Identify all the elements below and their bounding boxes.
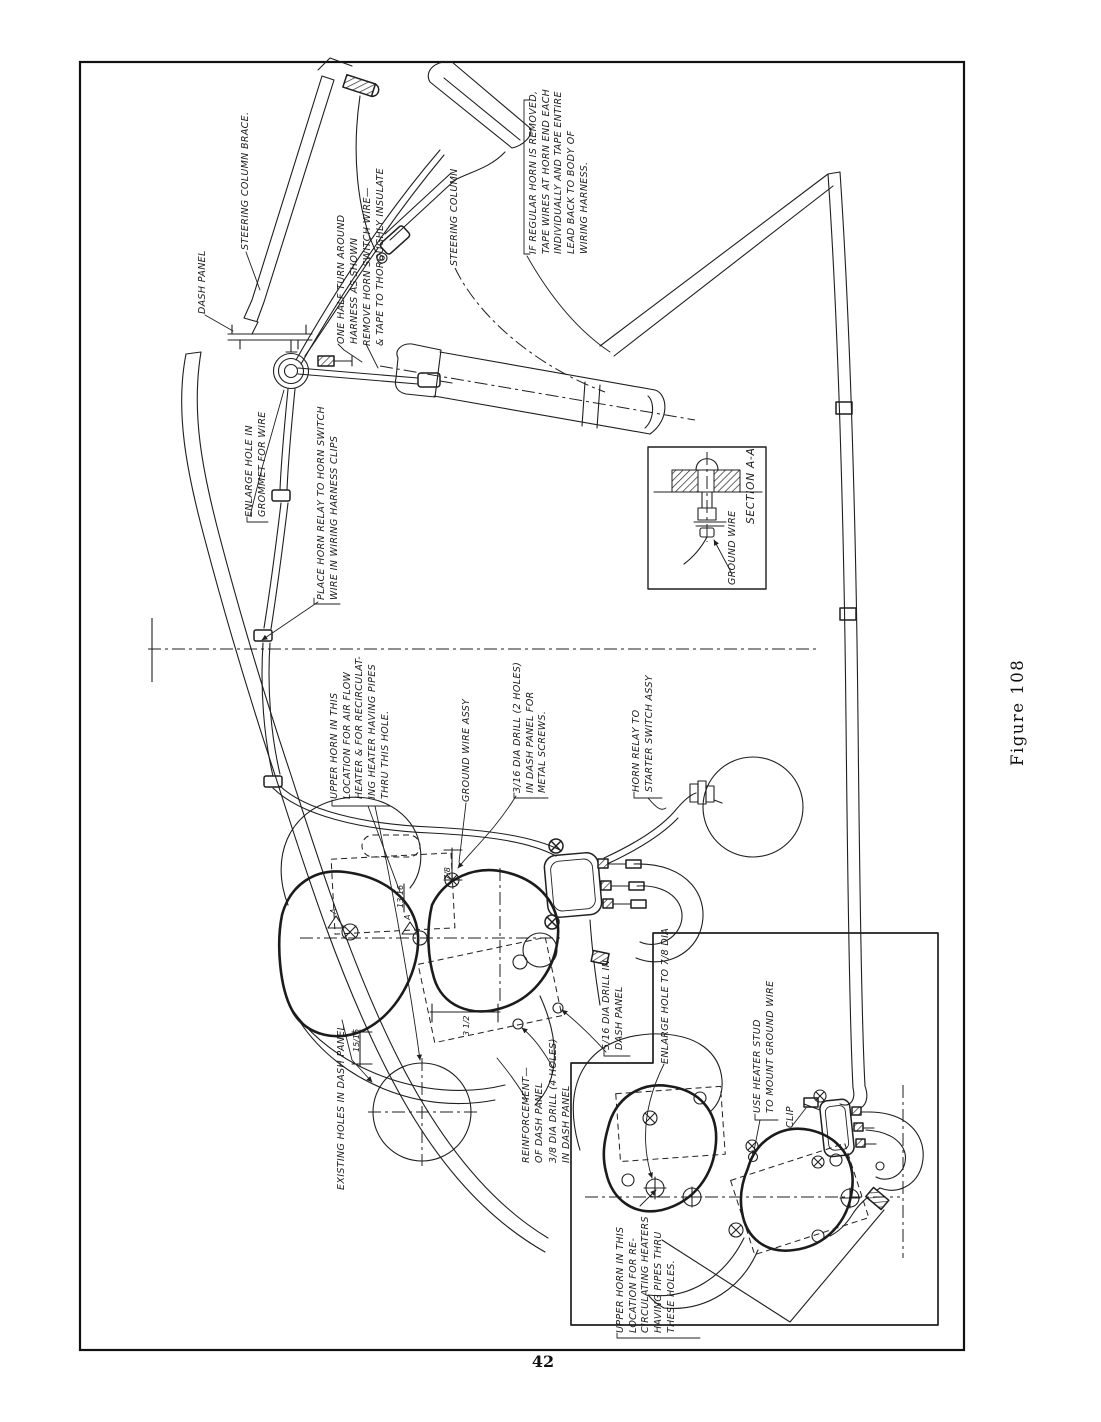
- label-harness-clips: PLACE HORN RELAY TO HORN SWITCH WIRE IN …: [316, 406, 341, 600]
- label-enlarge-grommet: ENLARGE HOLE IN GROMMET FOR WIRE: [244, 411, 269, 517]
- label-steering-column: STEERING COLUMN: [449, 168, 462, 266]
- label-remove-horn-switch-wire: REMOVE HORN SWITCH WIRE— & TAPE TO THORO…: [362, 168, 387, 346]
- page-number: 42: [0, 1352, 1086, 1371]
- dim-15-16: 15/16: [352, 1029, 361, 1052]
- label-drill-4-holes: 3/8 DIA DRILL (4 HOLES) IN DASH PANEL: [548, 1038, 573, 1163]
- label-relay-to-starter: HORN RELAY TO STARTER SWITCH ASSY: [631, 675, 656, 792]
- label-half-turn: ONE HALF TURN AROUND HARNESS AS SHOWN: [336, 215, 361, 344]
- label-heater-stud: USE HEATER STUD TO MOUNT GROUND WIRE: [752, 981, 777, 1114]
- label-upper-horn-main: UPPER HORN IN THIS LOCATION FOR AIR FLOW…: [329, 656, 393, 799]
- label-upper-horn-inset: UPPER HORN IN THIS LOCATION FOR RE- CIRC…: [615, 1216, 679, 1333]
- dim-13-16: 13/16: [396, 885, 405, 908]
- label-clip: CLIP: [785, 1106, 798, 1128]
- section-marker-a2: A: [403, 915, 412, 920]
- label-ground-wire-assy: GROUND WIRE ASSY: [461, 699, 474, 802]
- dim-3-1-2: 3 1/2: [462, 1015, 471, 1036]
- label-enlarge-hole-78: ENLARGE HOLE TO 7/8 DIA: [660, 928, 673, 1064]
- section-marker-a1: A: [329, 909, 338, 914]
- label-reinforcement: REINFORCEMENT— OF DASH PANEL: [521, 1067, 546, 1163]
- label-regular-horn-note: IF REGULAR HORN IS REMOVED, TAPE WIRES A…: [528, 89, 592, 254]
- label-existing-holes: EXISTING HOLES IN DASH PANEL: [336, 1025, 349, 1190]
- manual-page: DASH PANEL STEERING COLUMN BRACE. ONE HA…: [0, 0, 1101, 1422]
- label-drill-dash: 5/16 DIA DRILL IN DASH PANEL: [601, 960, 626, 1050]
- label-dash-panel: DASH PANEL: [197, 250, 210, 314]
- figure-caption: Figure 108: [1008, 659, 1027, 766]
- dim-7-8: 7/8: [443, 867, 452, 880]
- label-ground-wire: GROUND WIRE: [727, 511, 740, 585]
- label-steering-column-brace: STEERING COLUMN BRACE.: [240, 112, 253, 250]
- label-section-aa: SECTION A-A: [744, 447, 758, 524]
- label-drill-2-holes: 3/16 DIA DRILL (2 HOLES) IN DASH PANEL F…: [512, 662, 550, 793]
